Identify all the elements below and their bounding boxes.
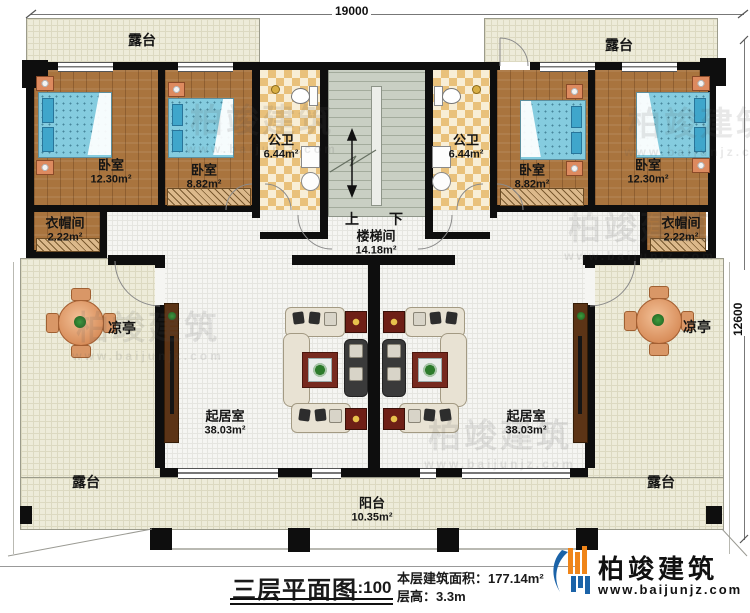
pillar-corner-left	[20, 506, 32, 524]
label-stair-up: 上	[345, 212, 359, 228]
label-terrace-bottom-left: 露台	[72, 475, 100, 491]
north-wall	[26, 62, 716, 70]
pillar-corner-right	[706, 506, 722, 524]
wall-south-bed-b	[158, 205, 259, 212]
wall-south-bath-l	[260, 232, 328, 239]
top-dimension-line	[30, 14, 744, 15]
nightstand	[692, 158, 710, 173]
brand-logo-icon	[548, 544, 594, 598]
wall-cloak-left-east	[100, 212, 107, 258]
faucet-icon	[271, 85, 280, 94]
bed-d	[636, 92, 710, 158]
label-terrace-bottom-right: 露台	[647, 475, 675, 491]
label-living-right: 起居室38.03m²	[506, 410, 547, 437]
label-bath-right: 公卫6.44m²	[449, 134, 484, 161]
pavilion-table-left	[48, 290, 112, 354]
window-north-2	[178, 62, 233, 72]
sink-icon	[432, 172, 451, 191]
label-cloak-right: 衣帽间2.22m²	[661, 217, 700, 244]
wall-south-bath-r	[425, 232, 490, 239]
bed-b	[168, 98, 234, 158]
floor-area-line: 本层建筑面积：177.14m²	[397, 568, 544, 587]
wall-south-bed-a	[26, 205, 158, 212]
pillar-bottom-3	[437, 528, 459, 552]
label-bedroom-d: 卧室12.30m²	[628, 159, 669, 186]
label-stair-down: 下	[389, 212, 403, 228]
scale-label: 1:100	[348, 578, 391, 598]
wall-center-party	[368, 255, 380, 477]
nightstand	[566, 84, 583, 99]
label-bath-left: 公卫6.44m²	[264, 134, 299, 161]
sink-icon	[301, 172, 320, 191]
toilet-icon	[291, 88, 310, 104]
brand-website: www.baijunjz.com	[598, 582, 742, 597]
floor-area-label: 本层建筑面积：	[397, 571, 488, 586]
label-bedroom-c: 卧室8.82m²	[515, 164, 550, 191]
label-bedroom-b: 卧室8.82m²	[187, 164, 222, 191]
label-pavilion-left: 凉亭	[108, 321, 136, 337]
sofa-set-left	[283, 303, 369, 435]
label-stairwell: 楼梯间14.18m²	[356, 230, 397, 257]
nightstand	[36, 76, 54, 91]
nightstand	[168, 82, 185, 97]
balcony-railing-line	[150, 548, 598, 550]
label-living-left: 起居室38.03m²	[205, 410, 246, 437]
sofa-set-right	[381, 303, 467, 435]
floor-height-value: 3.3m	[436, 589, 466, 604]
wall-bed-c-d	[588, 70, 595, 210]
bed-c	[520, 100, 586, 160]
tv-cabinet-left	[164, 303, 179, 443]
top-dimension-label: 19000	[332, 4, 371, 18]
label-cloak-left: 衣帽间2.22m²	[45, 217, 84, 244]
wall-bed-b-bath	[252, 70, 260, 218]
label-balcony: 阳台10.35m²	[352, 497, 393, 524]
terrace-door-gap	[500, 62, 530, 70]
stair-center-rail	[371, 86, 382, 206]
window-south-1	[178, 468, 278, 479]
wall-bed-a-b	[158, 70, 165, 210]
floor-plan-page: 19000 12600	[0, 0, 750, 613]
door-gap-west	[155, 268, 165, 305]
floor-height-line: 层高：3.3m	[397, 586, 466, 605]
wall-bath-stair-l	[320, 68, 328, 232]
label-terrace-top-right: 露台	[605, 38, 633, 54]
toilet-tank-left	[309, 86, 318, 106]
tv-cabinet-right	[573, 303, 588, 443]
window-north-1	[58, 62, 113, 72]
nightstand	[36, 160, 54, 175]
floor-area-value: 177.14m²	[488, 571, 544, 586]
west-wall	[26, 62, 34, 212]
pillar-bottom-1	[150, 528, 172, 550]
window-south-4	[462, 468, 570, 479]
nightstand	[692, 76, 710, 91]
wall-cloak-right-west	[640, 212, 647, 258]
closet-bed-c	[500, 188, 584, 206]
bed-a	[38, 92, 112, 158]
label-bedroom-a: 卧室12.30m²	[91, 159, 132, 186]
toilet-icon	[442, 88, 461, 104]
window-south-2	[312, 468, 341, 479]
pillar-bottom-2	[288, 528, 310, 552]
left-outer-line	[13, 262, 14, 554]
label-terrace-top-left: 露台	[128, 33, 156, 49]
label-pavilion-right: 凉亭	[683, 320, 711, 336]
wall-living-east-stub	[585, 258, 595, 268]
wall-south-bed-c	[490, 205, 595, 212]
floor-height-label: 层高：	[397, 589, 436, 604]
right-outer-line	[729, 262, 730, 554]
wall-living-west-stub	[155, 258, 165, 268]
nightstand	[566, 161, 583, 176]
faucet-icon	[472, 85, 481, 94]
closet-bed-b	[167, 188, 251, 206]
wall-south-bed-d	[588, 205, 716, 212]
vanity-left	[301, 146, 320, 168]
window-south-3	[420, 468, 436, 479]
right-dimension-label: 12600	[728, 270, 748, 336]
wall-bath-bed-c	[490, 70, 497, 218]
brand-name: 柏竣建筑	[598, 549, 718, 586]
pavilion-table-right	[626, 288, 690, 352]
door-gap-east	[585, 268, 595, 305]
window-north-4	[622, 62, 677, 72]
title-underline	[230, 598, 393, 605]
footer-divider-line	[0, 566, 580, 567]
window-north-3	[540, 62, 595, 72]
